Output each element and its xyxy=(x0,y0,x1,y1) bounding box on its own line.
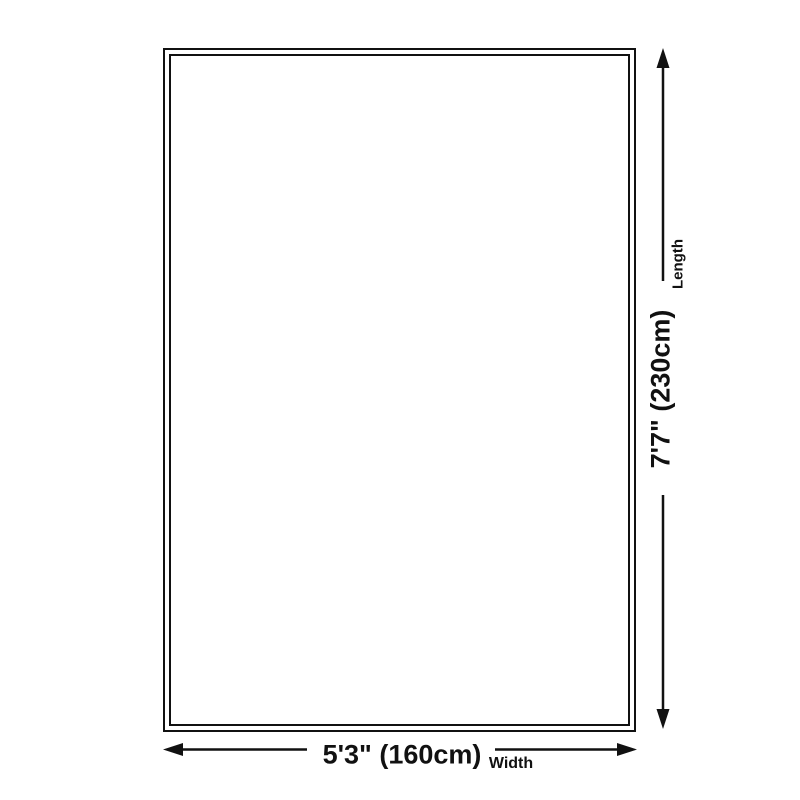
width-label: Width xyxy=(489,756,533,772)
arrow-right-icon xyxy=(617,743,637,756)
length-value: 7'7" (230cm) xyxy=(648,310,675,469)
dimension-arrows xyxy=(0,0,800,800)
length-label: Length xyxy=(671,239,686,289)
dimension-diagram: 7'7" (230cm) Length 5'3" (160cm) Width xyxy=(0,0,800,800)
width-value: 5'3" (160cm) xyxy=(323,742,482,769)
arrow-down-icon xyxy=(657,709,670,729)
